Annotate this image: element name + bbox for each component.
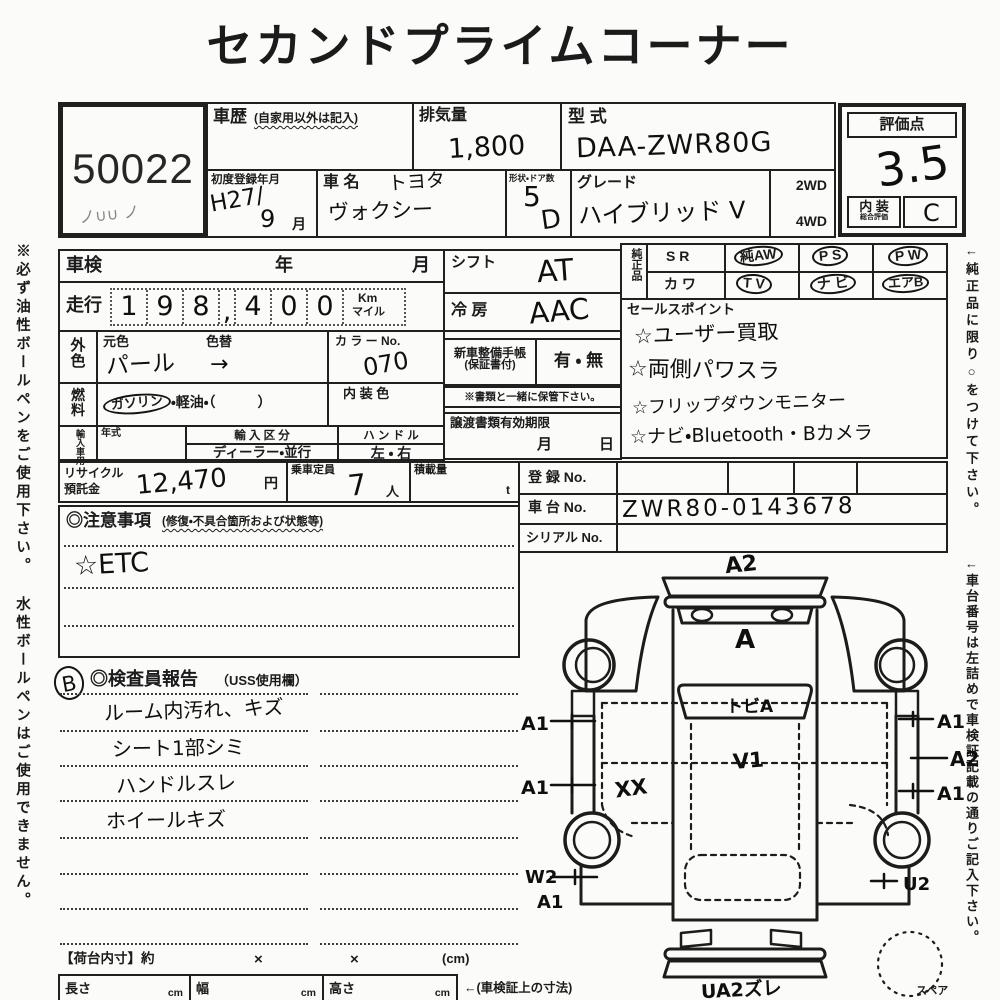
fuel-label: 燃 [60,388,96,403]
mark-rear-right: U2 [903,874,930,895]
rating-score: 3.5 [873,138,952,194]
headlight-left [692,609,712,621]
report-entry: ルーム内汚れ、キズ [104,697,284,723]
interior-color-label: 内 装 色 [343,387,389,401]
base-color-cell: 元色 色替 パール → [96,330,329,384]
payload-label: 積載量 [414,465,447,477]
capacity-cell: 乗車定員 7 人 [286,461,411,503]
report-line [320,837,518,839]
ext-color-label-cell: 外 色 [58,330,98,384]
shift-ac-box: シフト AT 冷 房 AAC [443,249,622,332]
maker-value: トヨタ [387,171,445,194]
genuine-parts-table: 純正品 S R 純AW P S P W カ ワ T V ナ ビ エアB [620,243,948,300]
page-title: セカンドプライムコーナー [150,22,850,70]
front-bumper [663,578,827,596]
capacity-value: 7 [347,470,368,501]
report-line [60,730,308,732]
left-door-strip [572,716,594,813]
genuine-item-navi: ナ ビ [810,274,856,294]
genuine-col-divider [798,245,800,298]
transfer-month-label: 月 [537,437,552,453]
left-bottom-hook [581,867,673,904]
cargo-x2: × [350,952,359,968]
fuel-options: ガソリン・軽油・（ ） [103,394,272,414]
reg-no-divider [856,463,858,493]
genuine-parts-label-cell: 純正品 [622,245,648,298]
fuel-circle-mark: ガソリン [102,391,171,416]
mark-rear-left-1: W2 [525,867,557,888]
fuel-options-rest: ・軽油・（ ） [171,394,272,410]
cargo-height-cm: cm [435,988,450,999]
lot-scribble: ノ∪∪ ノ [78,204,140,226]
recycle-label: リサイクル [64,467,123,480]
mark-roof: V1 [732,747,765,774]
ac-value: AAC [528,294,591,328]
cargo-width-cell: 幅 cm [189,974,324,1000]
handle-label: ハ ン ド ル [339,427,443,445]
inspector-report-sublabel: （USS使用欄） [216,674,308,688]
mark-left-door: XX [613,774,648,802]
genuine-item-navi-circled: ナ ビ [809,272,856,296]
sales-points-label: セールスポイント [627,303,735,317]
grade-cell: グレード ハイブリッド V [570,169,771,238]
genuine-item-tv-circled: T V [735,273,772,295]
report-line [60,800,308,802]
cargo-height-label: 高さ [329,982,355,996]
drive-2wd-label: 2WD [796,178,827,193]
mileage-digit: 0 [308,290,344,324]
right-front-wheel-inner [880,648,914,682]
genuine-item-ps: P S [812,246,848,266]
rear-window-dashed [685,855,800,900]
genuine-item-pw-circled: P W [887,244,929,267]
inspector-report: B ◎検査員報告 （USS使用欄） ルーム内汚れ、キズ シート1部シミ ハンドル… [58,660,520,950]
genuine-item-aw-circled: 純AW [733,244,783,268]
capacity-label: 乗車定員 [291,465,335,477]
shift-ac-divider [445,292,620,294]
payload-cell: 積載量 t [409,461,520,503]
grade-value: ハイブリッド V [578,198,746,228]
interior-grade: C [923,201,940,225]
shaken-month-label: 月 [412,256,430,275]
report-line [60,765,308,767]
genuine-parts-label: 純正品 [628,248,644,296]
genuine-item-ps-circled: P S [811,244,849,267]
genuine-item-tv: T V [736,274,772,294]
displacement-label: 排気量 [419,108,467,125]
report-line [60,908,308,910]
payload-unit: t [506,484,510,497]
genuine-item-airbag: エアB [882,274,929,293]
recycle-unit: 円 [264,476,278,491]
shaken-year-label: 年 [275,256,293,275]
handle-cell: ハ ン ド ル 左 ・ 右 [337,425,445,461]
displacement-cell: 排気量 1,800 [412,102,562,171]
report-entry: ホイールキズ [106,809,226,831]
cargo-width-label: 幅 [196,982,209,996]
fuel-label-2: 料 [60,403,96,418]
caution-line [64,545,514,547]
report-line [320,908,518,910]
model-code-value: DAA-ZWR80G [576,129,773,163]
shift-label: シフト [451,255,496,271]
mileage-label: 走行 [66,296,102,315]
mark-rear-bumper: UA2ズレ [700,976,782,1000]
mileage-digit-boxes: 1 9 8 , 4 0 0 Km マイル [110,288,406,326]
mileage-digit: 8 [184,290,220,324]
chassis-no-label: 車 台 No. [528,500,586,515]
warranty-options: 有 ・ 無 [537,352,620,370]
genuine-col-divider [724,245,726,298]
reg-no-divider [727,463,729,493]
color-no-cell: カ ラ ー No. 070 [327,330,445,384]
warranty-box: 新車整備手帳 (保証書付) 有 ・ 無 [443,338,622,386]
cargo-dims-label: 【荷台内寸】約 [60,952,155,966]
mileage-comma: , [220,290,234,324]
history-label: 車歴 [213,108,247,126]
report-line [60,873,308,875]
left-margin-note: ※必ず油性ボールペンをご使用下さい。 水性ボールペンはご使用できません。 [12,243,33,983]
caution-line [64,625,514,627]
mileage-row: 走行 1 9 8 , 4 0 0 Km マイル [58,281,445,332]
doors-cell: 形状・ドア数 5 D [505,169,572,238]
mark-front-top: A2 [724,552,759,579]
inspector-report-label: ◎検査員報告 [90,670,198,689]
spare-tire-label: スペア [916,986,948,998]
lot-number-box: 50022 ノ∪∪ ノ [58,102,208,238]
mark-rear-left-2: A1 [537,892,563,913]
left-front-wheel-inner [576,648,610,682]
mileage-digit: 0 [272,290,308,324]
right-mark-pointer-1 [899,712,933,726]
drive-cell: 2WD 4WD [769,169,836,238]
history-note: (自家用以外は記入) [254,112,358,125]
doors-value-2: D [539,206,562,235]
taillight-left [681,930,711,947]
interior-sublabel: 総合評価 [849,214,899,221]
taillight-right [771,930,801,947]
shift-value: AT [536,256,575,288]
ac-label: 冷 房 [451,303,487,320]
caution-line [64,587,514,589]
warranty-note-strip: ※書類と一緒に保管下さい。 [443,386,622,408]
warranty-label: 新車整備手帳 [445,347,535,360]
report-line [60,837,308,839]
sales-point-item: ☆ユーザー買取 [634,321,779,347]
vehicle-damage-diagram: A2 A トビA V1 XX A1 A1 A1 A2 A1 W2 A1 U2 U… [505,552,1000,1000]
ext-color-label: 外 [60,338,96,354]
warranty-label-cell: 新車整備手帳 (保証書付) [445,340,537,384]
import-class-cell: 輸 入 区 分 ディーラー・並行 [185,425,339,461]
rear-left-mark-pointer [551,870,597,884]
left-rear-wheel-inner [574,822,610,858]
front-bumper-band [665,597,825,607]
report-line [320,730,518,732]
fuel-options-cell: ガソリン・軽油・（ ） [96,382,329,427]
color-no-label: カ ラ ー No. [335,335,400,348]
genuine-item-kawa: カ ワ [664,277,696,292]
reg-no-label: 登 録 No. [528,470,586,485]
interior-label: 内 装 [849,200,899,214]
base-color-value: パール [105,352,175,379]
color-no-value: 070 [361,348,410,380]
mileage-unit-km: Km [358,292,377,305]
cargo-dims-row: 【荷台内寸】約 × × (cm) [58,950,520,974]
rear-right-mark-pointer [871,874,897,888]
import-class-options: ディーラー・並行 [187,446,337,460]
mileage-unit-mile: マイル [352,307,385,319]
cargo-length-cm: cm [168,988,183,999]
import-class-label: 輸 入 区 分 [187,427,337,445]
mileage-digit: 9 [148,290,184,324]
first-registration-month-label: 月 [292,217,306,232]
shaken-label: 車検 [66,256,102,275]
mark-right-2: A2 [950,747,979,771]
import-label: 輸入車用 [74,429,87,461]
interior-grade-cell: C [903,196,957,228]
right-margin-note-1: ←純正品に限り○をつけて下さい。 [962,243,981,563]
handle-options: 左 ・ 右 [339,446,443,461]
rear-bumper-band [665,949,825,959]
report-line [320,873,518,875]
right-mark-pointer-3 [899,784,933,798]
repaint-value: → [210,354,228,376]
shaken-row: 車検 年 月 [58,249,445,283]
headlight-right [772,609,792,621]
cargo-height-cell: 高さ cm [322,974,458,1000]
recycle-deposit-cell: リサイクル 預託金 12,470 円 [58,461,288,503]
right-door-strip [896,716,918,813]
genuine-item-sr: S R [666,249,689,264]
grade-label: グレード [577,175,637,191]
left-front-fender [586,597,658,691]
report-line [320,693,518,695]
capacity-unit: 人 [386,485,399,499]
right-rear-wheel-inner [884,822,920,858]
first-registration-month-value: 9 [260,207,275,231]
caution-label: ◎注意事項 [66,512,151,530]
sales-points-box: セールスポイント ☆ユーザー買取 ☆両側パワスラ ☆フリップダウンモニター ☆ナ… [620,298,948,459]
mark-left-2: A1 [521,777,549,799]
warranty-sublabel: (保証書付) [445,360,535,372]
mileage-digit: 4 [234,290,272,324]
ext-color-label-2: 色 [60,354,96,370]
auction-sheet: セカンドプライムコーナー 50022 ノ∪∪ ノ 車歴 (自家用以外は記入) 排… [0,0,1000,1000]
cargo-length-label: 長さ [65,982,91,996]
left-mark-pointer-2 [551,778,595,792]
first-registration-cell: 初度登録年月 H27/ 9 月 [206,169,318,238]
genuine-item-pw: P W [888,246,928,266]
drive-4wd-label: 4WD [796,214,827,229]
car-name-cell: 車 名 トヨタ ヴォクシー [316,169,507,238]
chassis-no-value: ZWR80-0143678 [622,495,856,522]
cargo-x1: × [254,952,263,968]
mark-windshield: トビA [726,697,774,717]
sales-point-item: ☆両側パワスラ [628,359,780,384]
reg-row-divider [520,523,946,525]
sales-point-item: ☆フリップダウンモニター [632,392,847,417]
caution-sublabel: (修復・不具合箇所および状態等) [162,516,323,528]
interior-color-cell: 内 装 色 [327,382,445,427]
mark-right-1: A1 [937,711,965,733]
transfer-docs-box: 譲渡書類有効期限 月 日 [443,412,622,460]
registration-box: 登 録 No. 車 台 No. シリアル No. ZWR80-0143678 [518,461,948,553]
report-entry: シート1部シミ [112,737,245,759]
history-cell: 車歴 (自家用以外は記入) [206,102,414,171]
first-registration-era: H27/ [208,184,265,216]
mileage-digit: 1 [112,290,148,324]
right-bottom-hook [817,867,909,904]
model-code-label: 型 式 [568,108,607,126]
right-front-fender [832,597,904,691]
report-line [320,800,518,802]
mark-left-1: A1 [521,713,549,735]
import-label-cell: 輸入車用 [58,425,98,461]
serial-no-label: シリアル No. [526,531,602,545]
inspector-grade-mark: B [51,664,86,703]
rear-bumper [664,961,826,977]
genuine-item-aw: 純AW [734,246,783,266]
recycle-value: 12,470 [135,465,228,499]
report-entry: ハンドルスレ [116,772,237,796]
reg-no-divider [793,463,795,493]
right-mirror [896,691,918,716]
mark-right-3: A1 [937,783,965,805]
year-model-cell: 年式 [96,425,187,461]
car-name-label: 車 名 [323,175,359,192]
car-name-value: ヴォクシー [328,199,434,224]
left-mirror [572,691,594,716]
cargo-length-cell: 長さ cm [58,974,191,1000]
year-model-label: 年式 [101,429,121,440]
genuine-item-airbag-circled: エアB [882,273,930,294]
caution-box: ◎注意事項 (修復・不具合箇所および状態等) ☆ETC [58,505,520,658]
lot-number: 50022 [63,145,203,193]
recycle-label-2: 預託金 [64,483,100,496]
genuine-col-divider [872,245,874,298]
cargo-note: ←(車検証上の寸法) [464,982,572,995]
base-color-label: 元色 [103,335,129,349]
cargo-width-cm: cm [301,988,316,999]
transfer-docs-label: 譲渡書類有効期限 [450,417,550,430]
transfer-day-label: 日 [599,437,614,453]
mileage-unit-cell: Km マイル [344,290,404,324]
genuine-row-divider [648,271,946,273]
cargo-unit: (cm) [442,952,469,966]
caution-entry: ☆ETC [73,549,149,580]
report-line [320,765,518,767]
repaint-label: 色替 [206,335,232,349]
rating-box: 評価点 3.5 内 装 総合評価 C [838,103,966,237]
mark-hood: A [735,625,755,655]
report-line [320,943,518,945]
displacement-value: 1,800 [447,132,526,163]
report-line [60,943,308,945]
sales-point-item: ☆ナビ・Bluetooth・Bカメラ [630,424,873,447]
interior-label-cell: 内 装 総合評価 [847,196,901,228]
fuel-label-cell: 燃 料 [58,382,98,427]
model-code-cell: 型 式 DAA-ZWR80G [560,102,836,171]
